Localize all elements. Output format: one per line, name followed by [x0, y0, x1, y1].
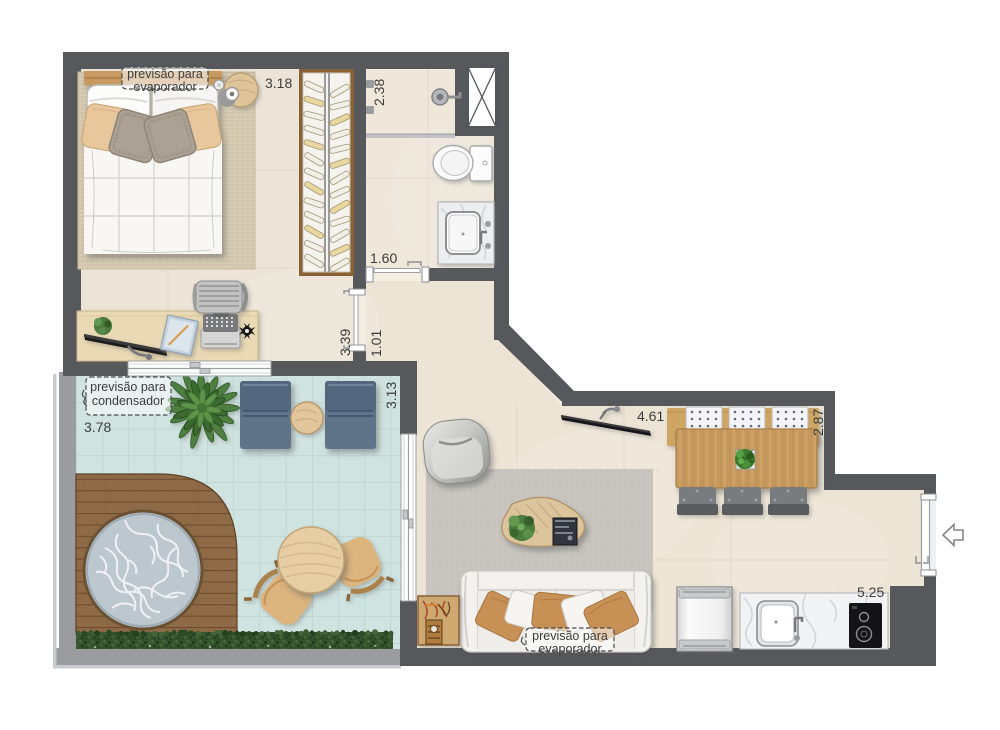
- svg-text:4.61: 4.61: [637, 408, 664, 424]
- svg-text:3.13: 3.13: [383, 382, 399, 409]
- svg-text:condensador: condensador: [92, 394, 164, 408]
- svg-text:previsão para: previsão para: [532, 629, 608, 643]
- svg-text:evaporador: evaporador: [133, 80, 196, 94]
- svg-text:2.38: 2.38: [371, 79, 387, 106]
- svg-text:3.78: 3.78: [84, 419, 111, 435]
- svg-text:1.60: 1.60: [370, 250, 397, 266]
- svg-text:2.87: 2.87: [810, 409, 826, 436]
- svg-text:3.39: 3.39: [337, 329, 353, 356]
- svg-text:previsão para: previsão para: [90, 380, 166, 394]
- svg-text:3.18: 3.18: [265, 75, 292, 91]
- svg-text:evaporador: evaporador: [538, 642, 601, 656]
- svg-text:5.25: 5.25: [857, 584, 884, 600]
- svg-text:1.01: 1.01: [368, 330, 384, 357]
- svg-text:previsão para: previsão para: [127, 67, 203, 81]
